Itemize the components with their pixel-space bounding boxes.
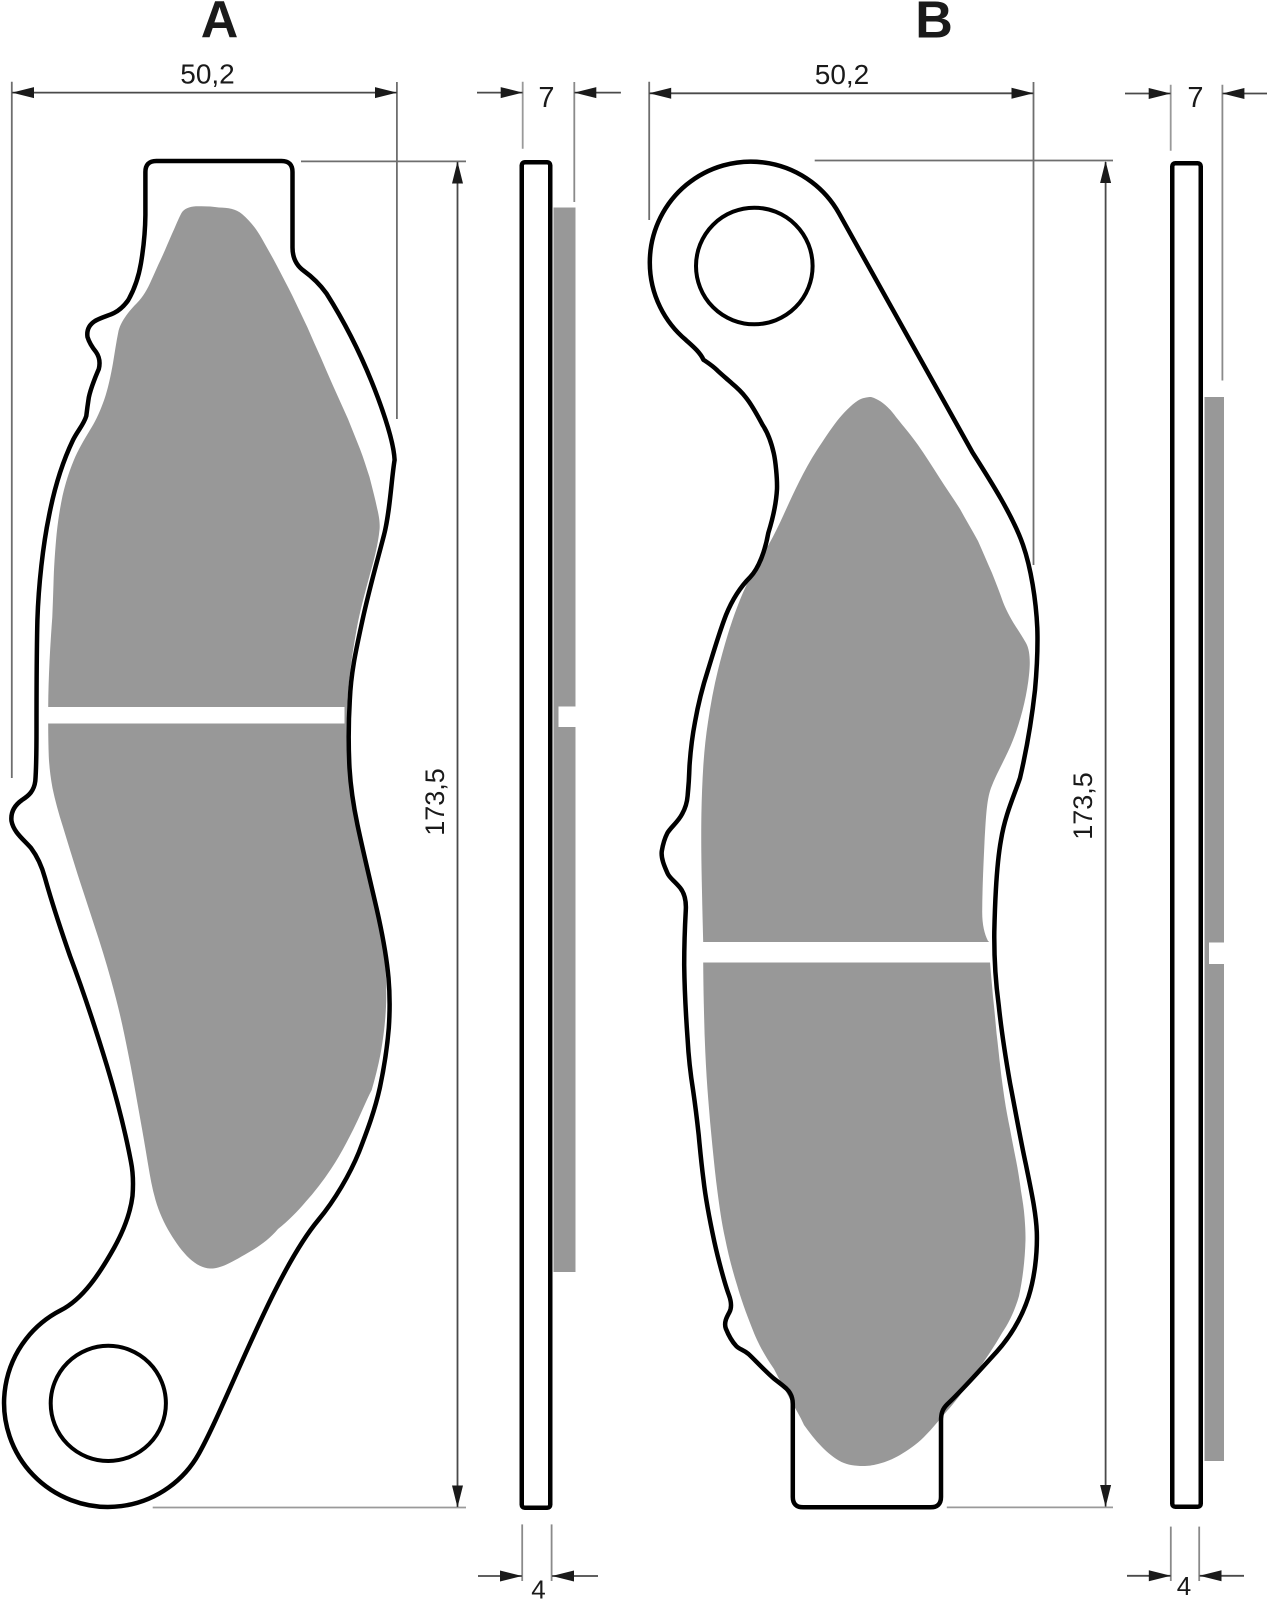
- svg-text:4: 4: [1177, 1571, 1191, 1600]
- svg-text:B: B: [915, 0, 953, 50]
- svg-text:173,5: 173,5: [420, 768, 450, 836]
- svg-text:50,2: 50,2: [815, 59, 870, 90]
- svg-text:7: 7: [538, 82, 554, 114]
- svg-text:7: 7: [1187, 82, 1203, 114]
- svg-text:A: A: [201, 0, 239, 49]
- svg-text:50,2: 50,2: [180, 59, 235, 90]
- svg-text:173,5: 173,5: [1068, 772, 1098, 840]
- svg-text:4: 4: [531, 1575, 545, 1600]
